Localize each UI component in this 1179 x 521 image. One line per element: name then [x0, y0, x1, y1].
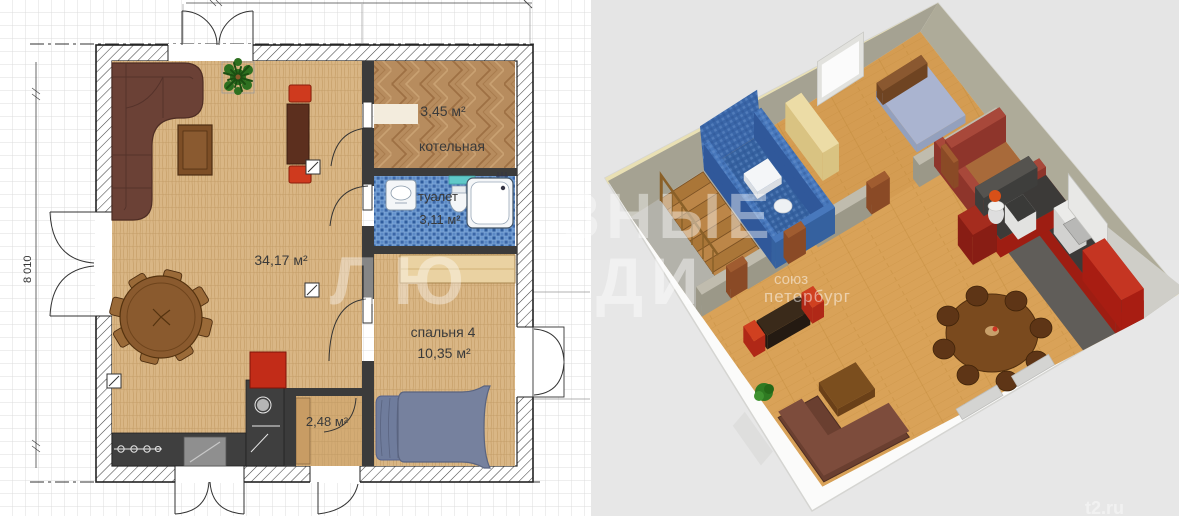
svg-text:10,35 м²: 10,35 м²: [417, 345, 471, 361]
svg-text:3,11 м²: 3,11 м²: [419, 212, 461, 227]
svg-text:ЗНЫЕ: ЗНЫЕ: [560, 180, 776, 252]
svg-text:туалет: туалет: [418, 189, 458, 204]
svg-text:петербург: петербург: [764, 287, 851, 306]
svg-text:t2.ru: t2.ru: [1085, 498, 1124, 516]
svg-text:8 010: 8 010: [22, 255, 34, 283]
svg-text:союз: союз: [774, 271, 808, 288]
svg-text:котельная: котельная: [419, 138, 485, 154]
svg-text:2,48 м²: 2,48 м²: [306, 414, 349, 429]
svg-text:ЛЮ: ЛЮ: [330, 243, 480, 319]
svg-text:34,17 м²: 34,17 м²: [254, 252, 308, 268]
svg-text:ДИ: ДИ: [596, 244, 706, 318]
svg-text:спальня 4: спальня 4: [411, 324, 476, 340]
svg-text:3,45 м²: 3,45 м²: [420, 103, 466, 119]
